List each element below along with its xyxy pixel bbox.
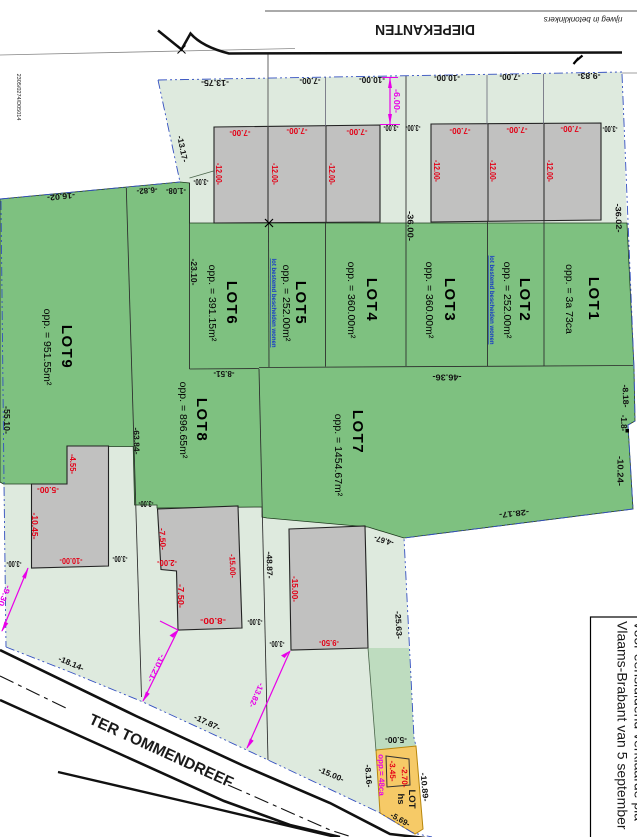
svg-text:-13.75-: -13.75- (201, 78, 229, 87)
svg-text:-10.45-: -10.45- (30, 513, 39, 540)
svg-text:opp. = 3a 73ca: opp. = 3a 73ca (563, 264, 575, 334)
svg-text:-46.36-: -46.36- (432, 372, 461, 381)
svg-text:opp. = 252.00m²: opp. = 252.00m² (501, 262, 513, 339)
svg-text:LOT6: LOT6 (223, 281, 240, 325)
svg-text:opp. = 1454.67m²: opp. = 1454.67m² (332, 414, 344, 497)
svg-text:LOT4: LOT4 (363, 278, 380, 322)
svg-text:LOT2: LOT2 (516, 278, 533, 322)
svg-text:-7.50-: -7.50- (157, 528, 167, 551)
svg-text:-9.50-: -9.50- (319, 638, 339, 647)
svg-text:LOT1: LOT1 (585, 277, 602, 321)
svg-text:-7.00-: -7.00- (346, 127, 367, 136)
svg-text:opp. = 360.00m²: opp. = 360.00m² (345, 262, 357, 339)
svg-text:-15.00-: -15.00- (290, 576, 299, 602)
svg-text:-23.10-: -23.10- (189, 259, 198, 286)
svg-text:-15.00-: -15.00- (227, 554, 237, 579)
svg-text:2305/0274/D05014: 2305/0274/D05014 (15, 74, 21, 121)
svg-text:-7.00-: -7.00- (499, 72, 520, 81)
svg-text:-3.00-: -3.00- (6, 559, 21, 568)
svg-text:-3.00-: -3.00- (193, 177, 208, 186)
svg-text:rijweg in betonklinkers: rijweg in betonklinkers (544, 15, 623, 24)
svg-text:-7.00-: -7.00- (560, 124, 581, 133)
svg-text:LOT8: LOT8 (193, 398, 210, 442)
svg-text:-5.00-: -5.00- (37, 485, 59, 494)
svg-text:-3.00-: -3.00- (269, 639, 284, 648)
svg-text:-3.00-: -3.00- (405, 123, 420, 132)
svg-text:-9.83-: -9.83- (577, 71, 600, 80)
svg-text:-7.00-: -7.00- (299, 76, 320, 85)
svg-text:-10.00-: -10.00- (359, 75, 385, 84)
svg-text:opp. = 360.00m²: opp. = 360.00m² (423, 262, 435, 339)
svg-text:-12.00-: -12.00- (214, 163, 223, 185)
svg-text:opp.= 48ca: opp.= 48ca (377, 754, 387, 796)
svg-text:lot bestemd bescheiden wonen: lot bestemd bescheiden wonen (488, 255, 494, 344)
svg-text:Voor eensluidend verklaarde pl: Voor eensluidend verklaarde pla (632, 621, 637, 821)
svg-text:Vlaams-Brabant van 5 september: Vlaams-Brabant van 5 september (615, 621, 631, 830)
svg-text:LOT5: LOT5 (292, 281, 309, 325)
svg-text:opp. = 951.55m²: opp. = 951.55m² (41, 309, 53, 386)
svg-text:-8.18-: -8.18- (620, 384, 630, 408)
svg-text:-10.24-: -10.24- (615, 456, 624, 486)
svg-text:-12.00-: -12.00- (327, 163, 336, 185)
svg-text:-7.00-: -7.00- (286, 126, 307, 135)
svg-text:-25.63-: -25.63- (393, 611, 403, 640)
svg-text:-12.00-: -12.00- (270, 163, 279, 185)
svg-text:-8.00-: -8.00- (200, 616, 226, 625)
svg-text:-7.00-: -7.00- (449, 126, 470, 135)
svg-text:-10.00-: -10.00- (434, 73, 460, 82)
svg-text:-4.55-: -4.55- (68, 454, 77, 474)
svg-text:LOT9: LOT9 (58, 325, 75, 369)
svg-text:hs: hs (395, 793, 406, 804)
svg-text:-2.70-: -2.70- (400, 766, 409, 787)
svg-text:-6.00-: -6.00- (392, 89, 401, 113)
svg-text:LOT3: LOT3 (441, 278, 458, 322)
svg-text:LOT: LOT (406, 790, 417, 809)
svg-text:lot bestemd bescheiden wonen: lot bestemd bescheiden wonen (270, 258, 276, 347)
svg-text:-3.00-: -3.00- (602, 124, 617, 133)
svg-text:-3.00-: -3.00- (112, 554, 127, 563)
svg-text:-48.87-: -48.87- (265, 551, 275, 579)
svg-text:-12.00-: -12.00- (545, 160, 554, 182)
svg-text:-12.00-: -12.00- (488, 160, 497, 182)
svg-text:-1.08-: -1.08- (166, 186, 186, 195)
svg-text:-55.10-: -55.10- (2, 406, 11, 434)
svg-text:opp. = 252.00m²: opp. = 252.00m² (280, 265, 292, 342)
svg-text:-3.00-: -3.00- (138, 499, 153, 508)
svg-text:-3.45-: -3.45- (388, 760, 397, 781)
svg-text:DIEPEKANTEN: DIEPEKANTEN (375, 21, 475, 37)
svg-text:-8.51-: -8.51- (213, 369, 234, 378)
svg-text:-8.16-: -8.16- (363, 764, 374, 788)
svg-text:opp. = 896.65m²: opp. = 896.65m² (177, 382, 189, 459)
svg-text:-3.00-: -3.00- (247, 617, 262, 626)
svg-text:-7.00-: -7.00- (229, 128, 250, 137)
svg-text:-63.84-: -63.84- (132, 427, 142, 455)
svg-text:-2.00-: -2.00- (157, 558, 177, 567)
svg-text:-7.00-: -7.00- (506, 125, 527, 134)
svg-text:-36.00-: -36.00- (405, 211, 414, 241)
svg-text:-7.50-: -7.50- (176, 584, 185, 608)
svg-text:-36.02-: -36.02- (613, 203, 623, 233)
svg-text:-5.00-: -5.00- (385, 735, 407, 744)
svg-text:-10.00-: -10.00- (59, 556, 82, 565)
svg-text:opp. = 391.15m²: opp. = 391.15m² (206, 265, 218, 342)
svg-text:-12.00-: -12.00- (432, 160, 441, 182)
svg-text:LOT7: LOT7 (349, 410, 366, 454)
